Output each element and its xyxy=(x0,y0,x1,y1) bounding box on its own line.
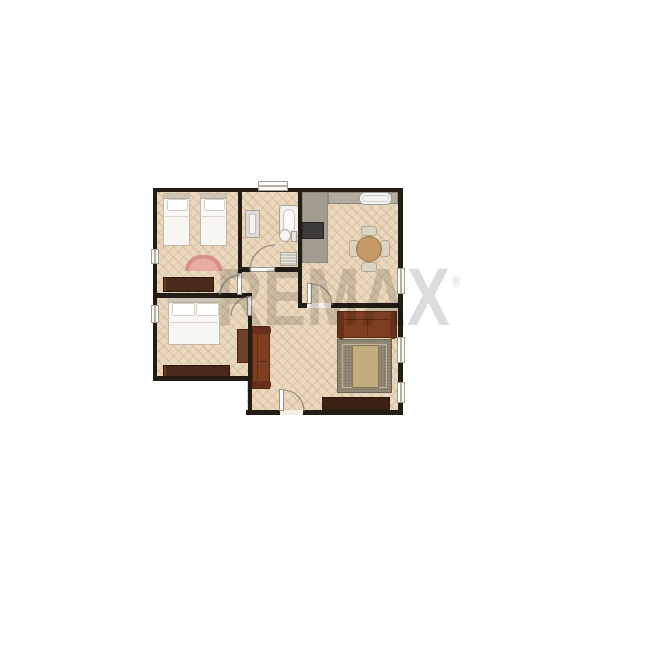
remax-watermark: REMAX® xyxy=(216,257,460,338)
window xyxy=(258,181,288,191)
window xyxy=(151,305,159,323)
sink xyxy=(359,192,392,205)
toilet-tank xyxy=(291,231,297,242)
pillow xyxy=(204,199,225,211)
wall xyxy=(153,188,157,381)
dresser xyxy=(163,277,214,292)
outside-area xyxy=(153,381,247,415)
sofa-seam xyxy=(257,361,267,362)
wall xyxy=(246,410,403,415)
washing-machine xyxy=(245,210,260,238)
double-bed xyxy=(168,297,220,345)
window xyxy=(151,249,159,264)
window xyxy=(397,382,405,403)
wall xyxy=(153,376,252,381)
chair xyxy=(361,226,377,236)
stove xyxy=(302,222,324,239)
watermark-text: REMAX xyxy=(216,252,450,342)
sideboard xyxy=(322,397,390,411)
blanket-fold xyxy=(170,322,218,323)
sofa-arm xyxy=(253,381,271,388)
registered-trademark-symbol: ® xyxy=(452,273,461,290)
twin-bed xyxy=(163,193,190,246)
blanket-fold xyxy=(202,216,225,217)
floorplan-canvas: REMAX® xyxy=(0,0,662,661)
coffee-table xyxy=(352,345,379,388)
twin-bed xyxy=(200,193,227,246)
toilet xyxy=(279,229,291,242)
door-leaf xyxy=(279,389,284,411)
pillow xyxy=(172,303,195,316)
pillow xyxy=(167,199,188,211)
blanket-fold xyxy=(165,216,188,217)
